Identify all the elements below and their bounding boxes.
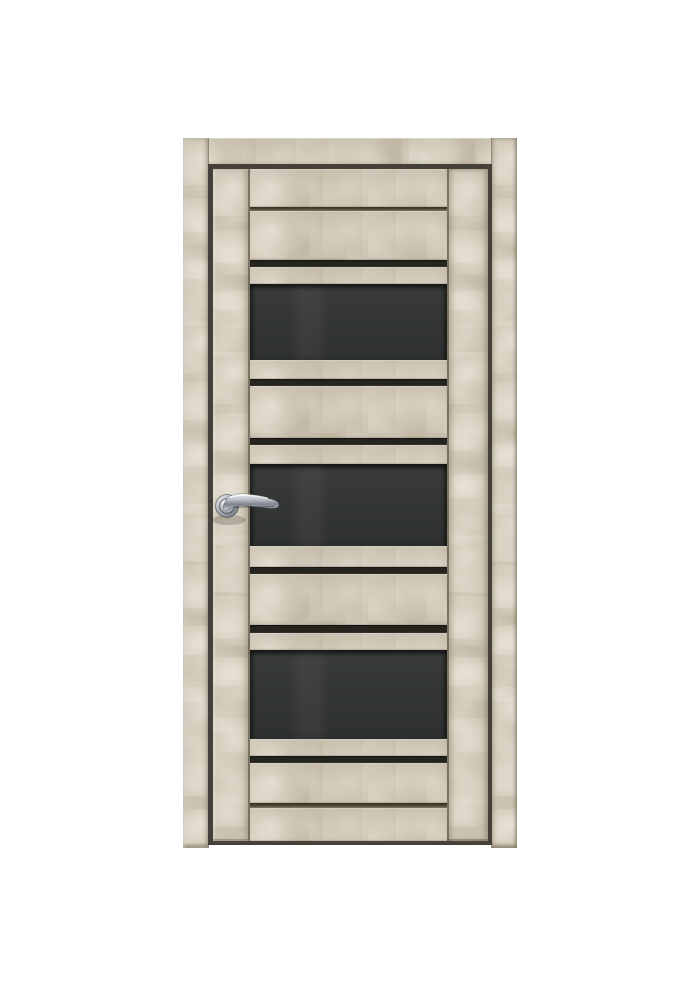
- mid-rail-1: [250, 386, 447, 438]
- accent-stripe-4: [250, 567, 447, 574]
- top-rail: [250, 169, 447, 207]
- mid-rail-2: [250, 574, 447, 625]
- lower-rail: [250, 763, 447, 803]
- accent-stripe-2: [250, 379, 447, 386]
- slat-below-glass-2: [250, 546, 447, 567]
- slat-above-glass-3: [250, 633, 447, 650]
- glass-panel-3: [250, 650, 447, 739]
- door-stile-right: [447, 169, 488, 841]
- upper-rail: [250, 211, 447, 260]
- slat-above-glass-2: [250, 445, 447, 464]
- door-casing-header: [183, 138, 517, 166]
- accent-stripe-6: [250, 756, 447, 763]
- door-handle: [203, 477, 291, 533]
- casing-miter-joint-right: [491, 138, 492, 166]
- slat-below-glass-3: [250, 739, 447, 756]
- slat-below-glass-1: [250, 360, 447, 379]
- door-casing-leg-right: [491, 138, 517, 848]
- bottom-rail: [250, 808, 447, 841]
- accent-stripe-3: [250, 438, 447, 445]
- slat-above-glass-1: [250, 267, 447, 284]
- glass-panel-1: [250, 284, 447, 360]
- casing-miter-joint-left: [208, 138, 209, 166]
- accent-stripe-5: [250, 625, 447, 633]
- product-photo-canvas: [0, 0, 700, 1000]
- accent-stripe-1: [250, 260, 447, 267]
